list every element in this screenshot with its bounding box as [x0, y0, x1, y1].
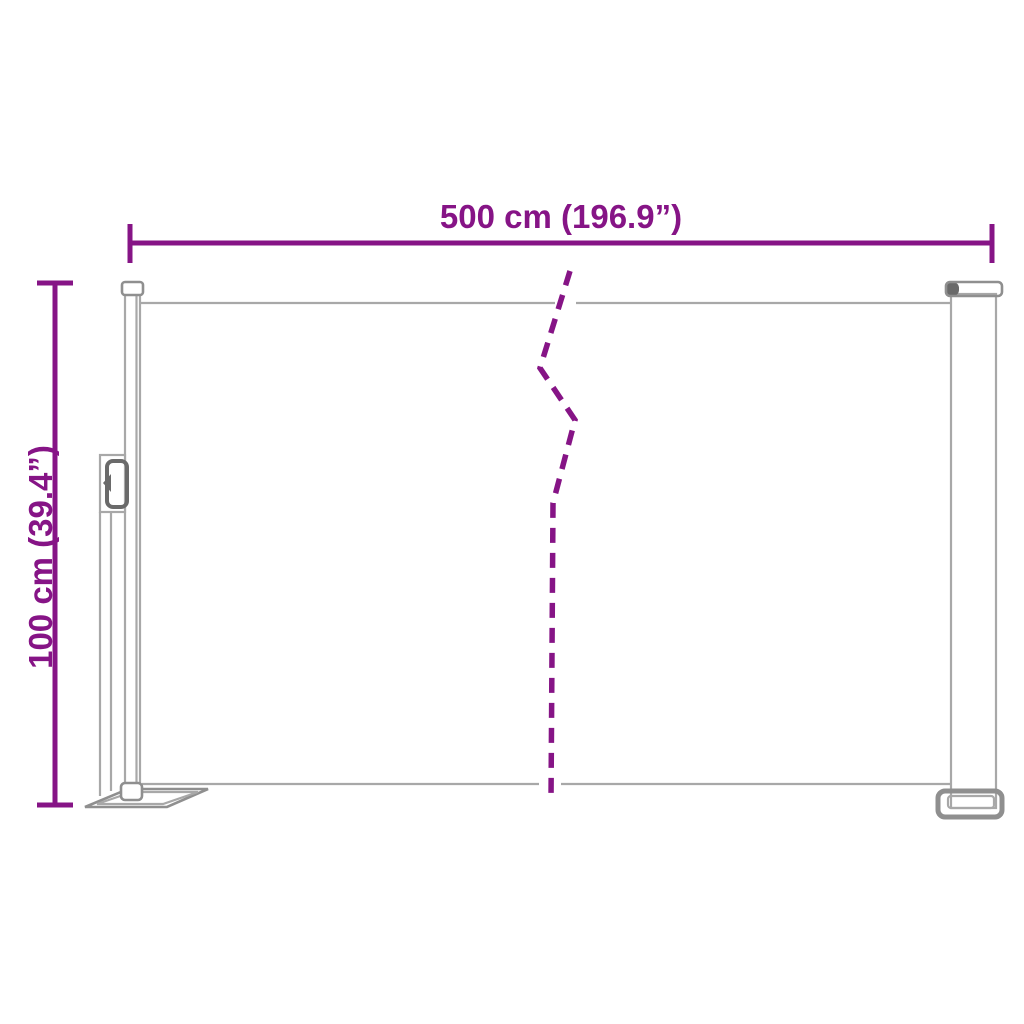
width-dimension-label: 500 cm (196.9”): [440, 198, 682, 235]
right-post-body: [951, 294, 996, 808]
right-post-cap-tip: [946, 282, 959, 296]
diagram-canvas: 500 cm (196.9”) 100 cm (39.4”): [0, 0, 1024, 1024]
awning-illustration: [85, 271, 1002, 817]
break-line: [540, 271, 575, 801]
awning-dimension-diagram: 500 cm (196.9”) 100 cm (39.4”): [0, 0, 1024, 1024]
left-pole-bottom-cap: [121, 783, 142, 800]
left-pole-assembly: [85, 282, 208, 807]
left-base-plate-inner: [97, 792, 198, 804]
horizontal-dimension: 500 cm (196.9”): [130, 198, 992, 263]
left-pole-body: [125, 294, 140, 789]
vertical-dimension: 100 cm (39.4”): [22, 283, 73, 805]
left-pole-top-cap: [122, 282, 143, 295]
height-dimension-label: 100 cm (39.4”): [22, 445, 59, 669]
right-post-assembly: [938, 282, 1002, 817]
